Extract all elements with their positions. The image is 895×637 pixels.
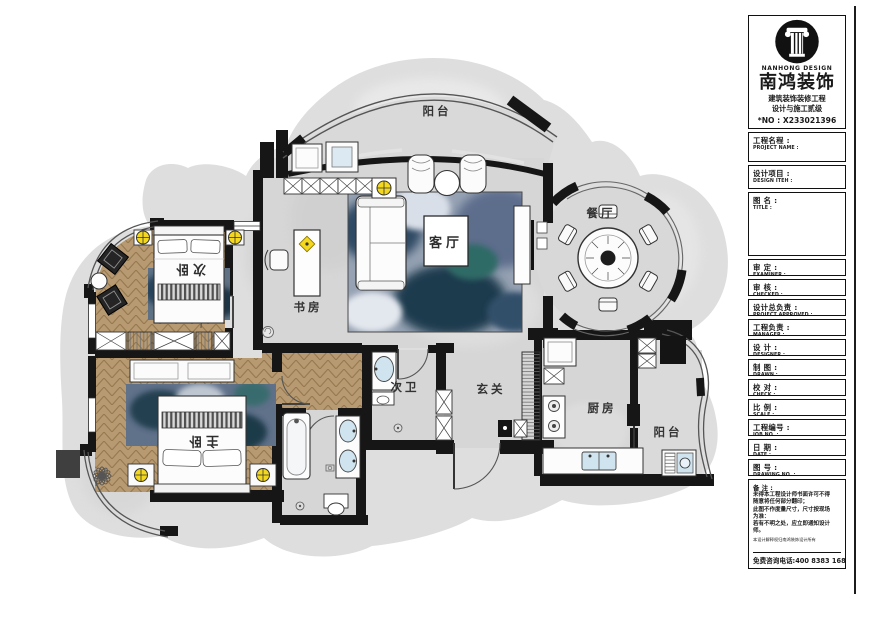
field-manager: 工程负责 : MANAGER : [748, 319, 846, 336]
remarks-heading: 备 注 : [753, 483, 841, 492]
sofa-side-table-lamp [372, 178, 396, 198]
field-project-approved: 设计总负责 : PROJECT APPROVED : [748, 299, 846, 316]
field-date: 日 期 : DATE : [748, 439, 846, 456]
field-drawing-no: 图 号 : DRAWING NO. : [748, 459, 846, 476]
title-block: NANHONG DESIGN 南鸿装饰 建筑装饰装修工程 设计与施工贰级 *NO… [748, 15, 846, 569]
field-project-name: 工程名程 : PROJECT NAME : [748, 132, 846, 162]
room-label-living: 客厅 [429, 235, 463, 251]
field-examiner: 审 定 : EXAMINER : [748, 259, 846, 276]
field-job-no: 工程编号 : JOB NO. : [748, 419, 846, 436]
nanhong-logo-icon [771, 19, 823, 64]
license-no: *NO : X233021396 [758, 116, 837, 125]
balcony-side-fixtures [662, 450, 696, 476]
room-label-kitchen: 厨房 [588, 401, 617, 415]
room-label-entry: 玄关 [477, 382, 506, 396]
room-label-balcony-top: 阳台 [423, 104, 452, 118]
field-design-item: 设计项目 : DESIGN ITEH : [748, 165, 846, 189]
room-label-study: 书房 [294, 300, 323, 314]
qualification-line1: 建筑装饰装修工程 [768, 94, 826, 103]
sheet-frame-line [854, 6, 856, 594]
brand-cn: 南鸿装饰 [759, 73, 835, 93]
remarks-block: 备 注 : 未得本工程设计师书面许可不得 随意将任何部分翻印； 此图不作度量尺寸… [748, 479, 846, 569]
room-label-bedroom-second: 次卧 [172, 261, 206, 277]
room-label-bath-second: 次卫 [391, 380, 420, 394]
floor-plan: 阳台 客厅 餐厅 次卧 书房 次卫 玄关 厨房 主卧 阳台 [0, 0, 748, 633]
copyright-note: 本设计解释权归南鸿装饰设计所有 [753, 537, 841, 543]
room-label-balcony-side: 阳台 [654, 425, 683, 439]
room-label-dining: 餐厅 [586, 206, 616, 220]
sofa [356, 196, 406, 290]
logo-block: NANHONG DESIGN 南鸿装饰 建筑装饰装修工程 设计与施工贰级 *NO… [748, 15, 846, 129]
qualification-line2: 设计与施工贰级 [772, 104, 822, 113]
field-checked: 审 核 : CHECKED : [748, 279, 846, 296]
field-scale: 比 例 : SCALE : [748, 399, 846, 416]
field-check: 校 对 : CHECK : [748, 379, 846, 396]
field-title: 图 名 : TITLE : [748, 192, 846, 256]
hotline: 免费咨询电话:400 8383 168 [753, 552, 841, 565]
field-drawn: 制 图 : DRAWN : [748, 359, 846, 376]
room-label-bedroom-master: 主卧 [185, 433, 219, 449]
field-designer: 设 计 : DESIGNER : [748, 339, 846, 356]
